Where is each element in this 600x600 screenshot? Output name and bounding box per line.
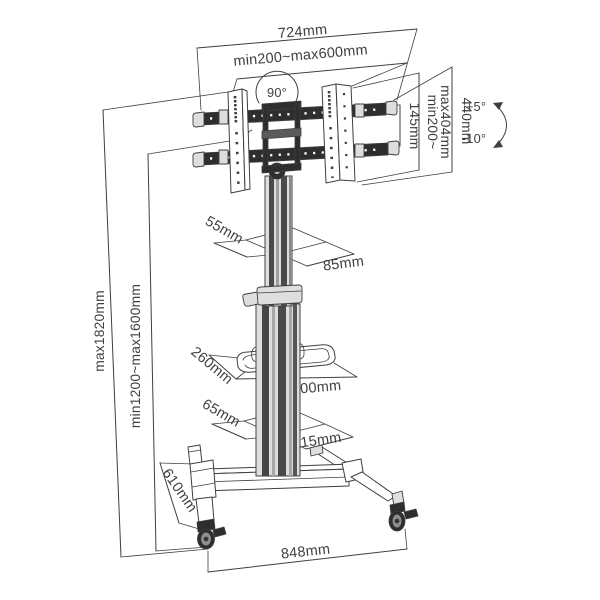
rotation-angle-label: 90° bbox=[267, 85, 287, 100]
base-frame bbox=[188, 445, 418, 549]
dim-overall-height-label: max1820mm bbox=[92, 290, 107, 372]
rail-spacer bbox=[355, 144, 364, 157]
dim-screen-height-label: min1200~max1600mm bbox=[128, 284, 143, 428]
rail-end-cap bbox=[193, 152, 204, 167]
tilt-down-label: -10° bbox=[462, 131, 486, 146]
vesa-strip-left bbox=[228, 89, 250, 193]
rail-end-cap bbox=[386, 101, 397, 115]
clamp-lever bbox=[243, 292, 258, 306]
column bbox=[243, 176, 302, 476]
vesa-strip-right bbox=[322, 84, 355, 183]
diagram-canvas: 724mm min200~max600mm 90° 145mm min200~ bbox=[0, 0, 600, 600]
dim-vesa-height: min200~ max404mm bbox=[353, 73, 453, 182]
rail-spacer bbox=[219, 150, 228, 164]
tilt-up-label: +5° bbox=[466, 99, 486, 114]
caster-front-left bbox=[197, 519, 226, 549]
dim-upper-depth-label: 55mm bbox=[202, 213, 246, 247]
rail-spacer bbox=[219, 110, 228, 124]
tv-stand-dimension-drawing: 724mm min200~max600mm 90° 145mm min200~ bbox=[0, 0, 600, 600]
rail-spacer bbox=[355, 104, 364, 117]
dim-vesa-height-label-1: min200~ bbox=[425, 95, 440, 150]
dim-vesa-width-label: min200~max600mm bbox=[233, 42, 369, 70]
dim-base-width: 848mm bbox=[208, 529, 407, 572]
dim-vesa-width: min200~max600mm bbox=[233, 42, 407, 92]
dim-upper-width-label: 85mm bbox=[322, 254, 365, 275]
dim-lower-depth-label: 65mm bbox=[199, 396, 243, 430]
column-lower bbox=[256, 304, 300, 476]
dim-bracket-gap-label: 145mm bbox=[407, 102, 422, 149]
dim-overall-width-label: 724mm bbox=[277, 22, 328, 42]
rail-end-cap bbox=[388, 141, 399, 155]
base-leg-front-right bbox=[351, 472, 396, 501]
base-joint-left bbox=[190, 460, 216, 500]
dim-vesa-height-label-2: max404mm bbox=[438, 85, 453, 159]
dim-shelf-depth-label: 260mm bbox=[188, 344, 236, 388]
caster-front-right bbox=[389, 502, 418, 531]
rail-end-cap bbox=[193, 112, 204, 127]
dim-base-width-label: 848mm bbox=[280, 541, 331, 562]
caster-brake-right bbox=[404, 509, 418, 519]
height-clamp bbox=[243, 285, 302, 306]
